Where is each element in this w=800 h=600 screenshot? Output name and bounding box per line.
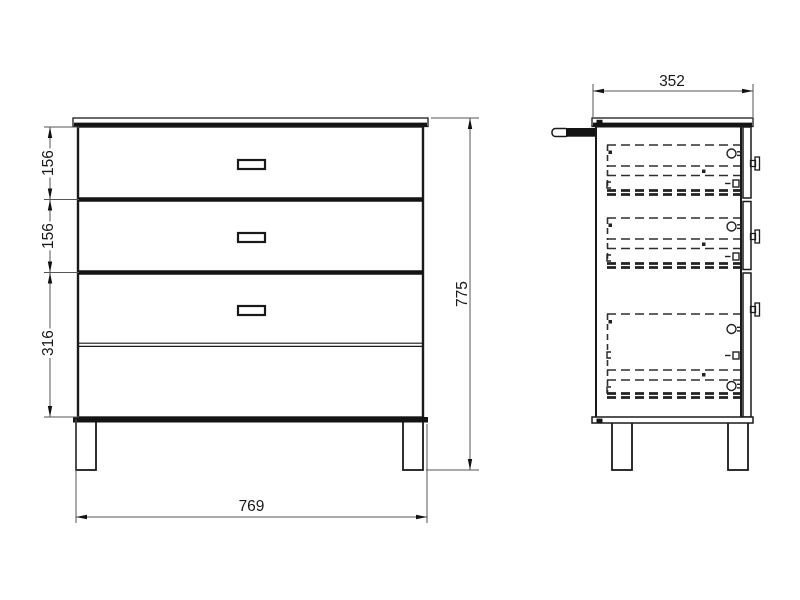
side-legs xyxy=(612,421,748,470)
dim-overall-width-label: 769 xyxy=(239,498,265,515)
side-body xyxy=(596,127,741,418)
front-drawer-handles xyxy=(238,160,265,315)
side-handle-profiles xyxy=(751,157,760,316)
wall-bracket-icon xyxy=(552,128,595,137)
dimension-depth: 352 xyxy=(593,73,753,117)
front-view xyxy=(73,118,428,470)
side-drawer-fronts xyxy=(743,127,751,417)
dim-depth-label: 352 xyxy=(659,73,685,90)
front-drawer-dividers xyxy=(78,200,423,347)
dimension-left-heights: 156 156 316 xyxy=(40,127,79,417)
dimension-overall-width: 769 xyxy=(76,419,427,523)
drawing-svg: 156 156 316 775 769 352 xyxy=(0,0,800,600)
drawer3-hidden-lines xyxy=(607,314,742,398)
side-bottom-panel xyxy=(592,417,753,423)
front-top-panel xyxy=(73,118,428,127)
side-view xyxy=(552,118,760,470)
dim-bottom-drawer-height-label: 316 xyxy=(40,330,57,356)
dim-overall-height-label: 775 xyxy=(454,281,471,307)
front-legs xyxy=(76,421,423,470)
front-bottom-panel xyxy=(73,417,428,423)
technical-drawing-chest-of-drawers: 156 156 316 775 769 352 xyxy=(0,0,800,600)
dim-drawer1-height-label: 156 xyxy=(40,150,57,176)
side-top-panel xyxy=(592,118,753,127)
drawer3-handle xyxy=(238,306,265,315)
dim-drawer2-height-label: 156 xyxy=(40,223,57,249)
drawer1-hidden-lines xyxy=(607,145,742,195)
dimension-overall-height: 775 xyxy=(426,118,479,470)
drawer2-hidden-lines xyxy=(607,218,742,268)
drawer2-handle xyxy=(238,233,265,242)
drawer1-handle xyxy=(238,160,265,169)
